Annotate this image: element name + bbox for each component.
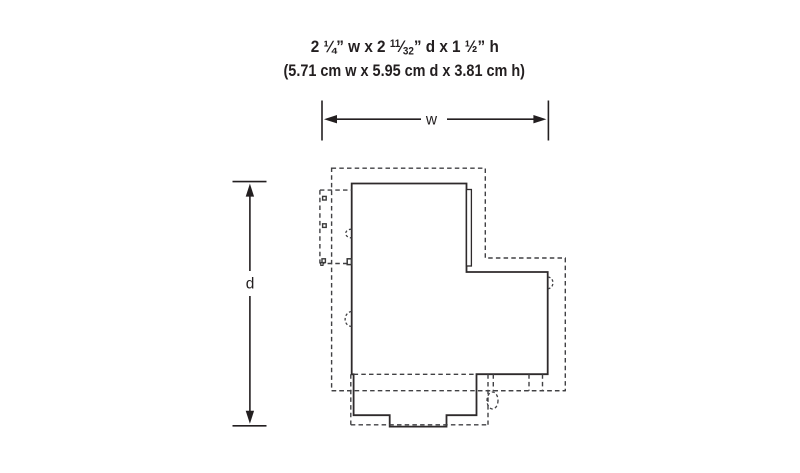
- svg-text:w: w: [425, 112, 438, 129]
- svg-text:(5.71 cm w x 5.95 cm d x 3.81: (5.71 cm w x 5.95 cm d x 3.81 cm h): [284, 61, 526, 80]
- svg-text:2 ¼” w x 2 11⁄32” d x 1 ½” h: 2 ¼” w x 2 11⁄32” d x 1 ½” h: [311, 37, 499, 58]
- svg-text:d: d: [246, 276, 255, 293]
